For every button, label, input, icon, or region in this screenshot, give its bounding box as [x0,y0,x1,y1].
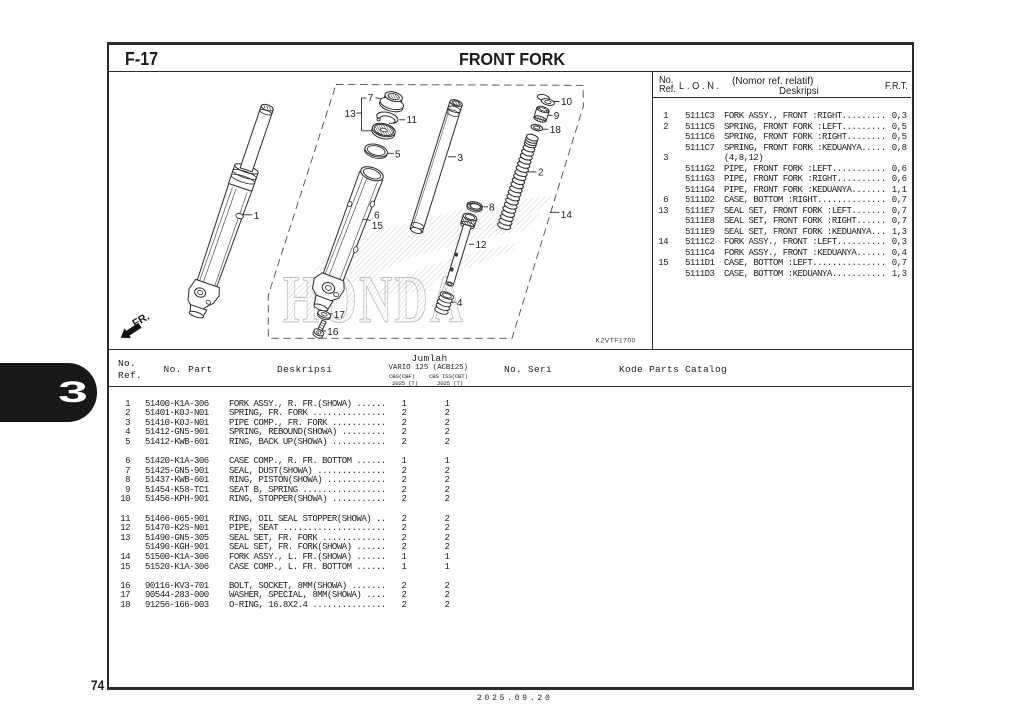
svg-text:5: 5 [395,150,401,161]
svg-text:4: 4 [457,298,463,309]
svg-text:16: 16 [327,327,339,338]
svg-text:18: 18 [550,125,562,136]
svg-text:6: 6 [374,210,380,221]
svg-text:K2VTF1700: K2VTF1700 [596,338,636,345]
svg-text:3: 3 [458,153,464,164]
svg-text:2: 2 [538,168,544,179]
svg-text:7: 7 [368,93,374,104]
svg-text:10: 10 [561,97,573,108]
svg-text:1: 1 [254,211,260,222]
svg-text:15: 15 [372,221,384,232]
svg-text:11: 11 [407,115,418,126]
svg-text:HONDA: HONDA [283,261,465,337]
svg-text:8: 8 [489,202,495,213]
svg-text:14: 14 [561,210,573,221]
svg-text:12: 12 [476,240,488,251]
svg-text:17: 17 [334,310,346,321]
svg-text:13: 13 [345,109,357,120]
svg-text:9: 9 [554,111,560,122]
